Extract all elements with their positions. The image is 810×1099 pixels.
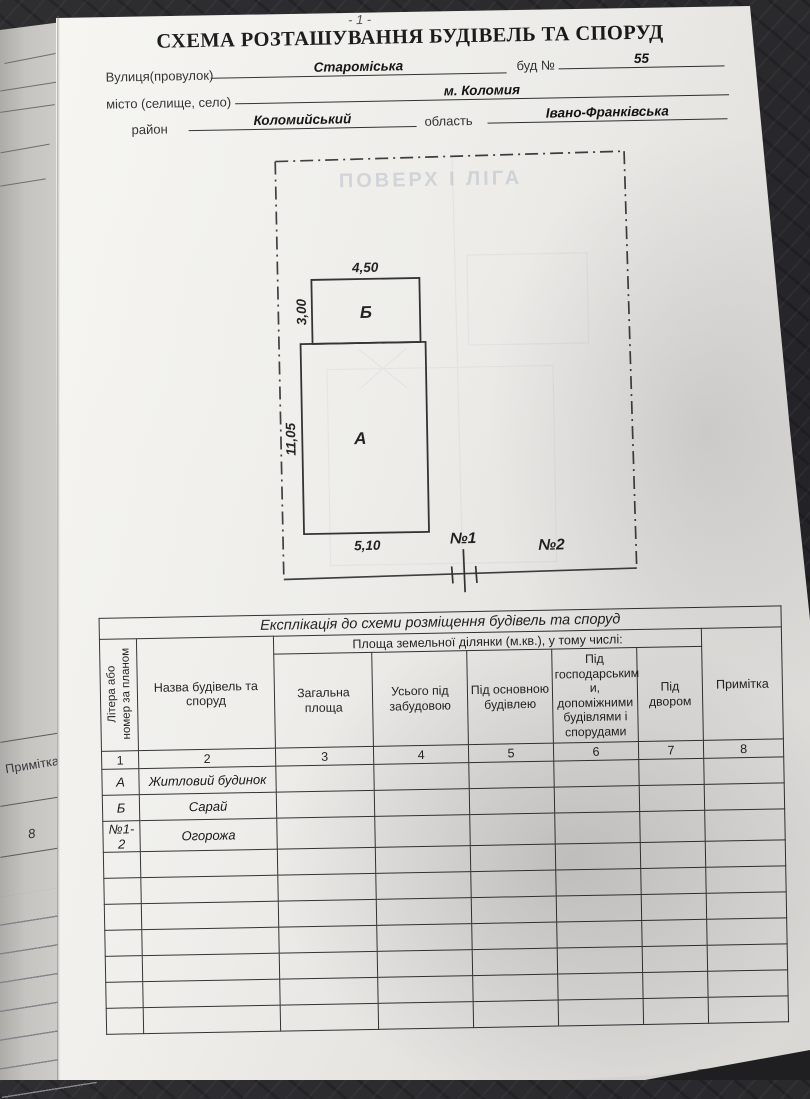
- col-header-letter: Літера або номер за планом: [99, 639, 138, 752]
- col-header-auxiliary: Під господарським и, допоміжними будівля…: [552, 648, 639, 744]
- row-name: Житловий будинок: [139, 766, 276, 795]
- row-letter: А: [102, 769, 139, 796]
- district-value: Коломийський: [188, 110, 416, 131]
- col-header-name: Назва будівель та споруд: [136, 636, 275, 750]
- fence-label-2: №2: [538, 536, 565, 553]
- col-header-yard: Під двором: [637, 646, 704, 741]
- street-value: Староміська: [210, 56, 506, 78]
- site-plan-drawing: ПОВЕРХ І ЛІГА 4,50 3,00 Б: [215, 132, 647, 604]
- dim-a-height: 11,05: [283, 422, 299, 456]
- document-page: - 1 - СХЕМА РОЗТАШУВАННЯ БУДІВЕЛЬ ТА СПО…: [0, 0, 810, 1080]
- row-name: Сарай: [139, 792, 276, 821]
- building-no-label: буд №: [516, 57, 555, 73]
- district-label: район: [131, 122, 167, 138]
- dim-b-height: 3,00: [294, 298, 309, 325]
- fence-label-1: №1: [450, 530, 477, 547]
- explication-table: Експлікація до схеми розміщення будівель…: [99, 605, 790, 1034]
- ghost-floorplan-lines: [323, 155, 593, 574]
- building-a-label: А: [353, 429, 367, 448]
- building-no-value: 55: [558, 49, 724, 69]
- dim-a-width: 5,10: [354, 538, 381, 553]
- col-header-built-up: Усього під забудовою: [372, 651, 469, 747]
- dim-b-width: 4,50: [351, 260, 379, 276]
- col-header-total-area: Загальна площа: [274, 652, 374, 748]
- city-label: місто (селище, село): [106, 94, 231, 111]
- fence-ticks: [451, 549, 477, 592]
- row-letter: Б: [102, 795, 139, 822]
- page-number: - 1 -: [319, 11, 399, 27]
- building-b-label: Б: [360, 303, 372, 322]
- col-header-main-building: Під основною будівлею: [467, 649, 554, 745]
- col-header-note: Примітка: [701, 627, 783, 740]
- row-name: Огорожа: [140, 818, 278, 852]
- city-value: м. Коломия: [235, 78, 729, 104]
- street-label: Вулиця(провулок): [105, 68, 213, 85]
- region-value: Івано-Франківська: [487, 102, 727, 123]
- row-letter: №1-2: [103, 821, 141, 853]
- region-label: область: [424, 113, 472, 129]
- ghost-bleed-text: ПОВЕРХ І ЛІГА: [339, 167, 523, 192]
- page-edge-crease: [57, 16, 60, 1080]
- document-title: СХЕМА РОЗТАШУВАННЯ БУДІВЕЛЬ ТА СПОРУД: [95, 20, 725, 55]
- exp-table-body: Експлікація до схеми розміщення будівель…: [99, 606, 789, 1034]
